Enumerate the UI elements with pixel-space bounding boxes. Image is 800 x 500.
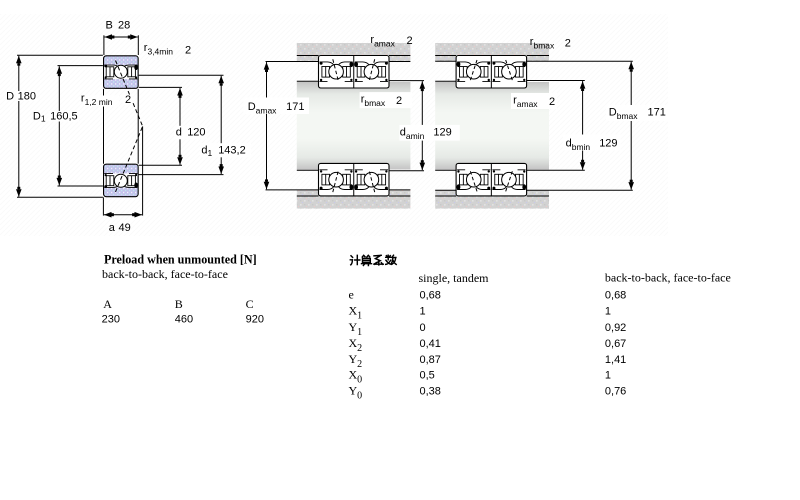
svg-text:0,38: 0,38	[420, 386, 441, 398]
svg-text:0,92: 0,92	[605, 322, 626, 334]
svg-text:single, tandem: single, tandem	[419, 271, 490, 285]
svg-text:D1: D1	[33, 111, 46, 124]
svg-text:2: 2	[185, 45, 191, 57]
svg-text:0,67: 0,67	[605, 338, 626, 350]
svg-text:180: 180	[18, 90, 36, 102]
svg-text:d: d	[176, 127, 182, 139]
svg-text:129: 129	[433, 127, 451, 139]
svg-text:0: 0	[420, 322, 426, 334]
svg-text:1: 1	[605, 370, 611, 382]
svg-text:e: e	[349, 288, 354, 302]
svg-text:120: 120	[187, 127, 205, 139]
svg-text:920: 920	[246, 314, 264, 326]
svg-text:2: 2	[565, 37, 571, 49]
svg-text:49: 49	[119, 222, 131, 234]
svg-text:back-to-back, face-to-face: back-to-back, face-to-face	[102, 267, 228, 281]
svg-text:460: 460	[175, 314, 193, 326]
svg-text:129: 129	[599, 138, 617, 150]
svg-text:0,68: 0,68	[420, 290, 441, 302]
svg-text:0,41: 0,41	[420, 338, 441, 350]
svg-text:230: 230	[102, 314, 120, 326]
svg-text:143,2: 143,2	[218, 145, 246, 157]
svg-text:B: B	[106, 20, 113, 32]
svg-text:C: C	[246, 297, 254, 311]
svg-text:2: 2	[549, 96, 555, 108]
svg-text:X1: X1	[349, 304, 363, 322]
svg-text:2: 2	[407, 35, 413, 47]
svg-text:160,5: 160,5	[50, 111, 78, 123]
svg-text:1: 1	[605, 306, 611, 318]
svg-text:28: 28	[118, 20, 130, 32]
svg-text:2: 2	[125, 94, 131, 106]
svg-text:171: 171	[648, 107, 666, 119]
svg-text:2: 2	[396, 95, 402, 107]
svg-text:B: B	[175, 297, 183, 311]
svg-text:D: D	[6, 90, 14, 102]
svg-text:0,5: 0,5	[420, 370, 435, 382]
svg-text:back-to-back, face-to-face: back-to-back, face-to-face	[605, 271, 731, 285]
svg-text:0,87: 0,87	[420, 354, 441, 366]
svg-text:a: a	[109, 222, 116, 234]
svg-text:0,68: 0,68	[605, 290, 626, 302]
svg-text:1,41: 1,41	[605, 354, 626, 366]
svg-text:A: A	[103, 297, 112, 311]
svg-text:171: 171	[286, 101, 304, 113]
svg-text:Y0: Y0	[349, 384, 363, 402]
svg-text:0,76: 0,76	[605, 386, 626, 398]
svg-text:1: 1	[420, 306, 426, 318]
svg-text:Preload when unmounted [N]: Preload when unmounted [N]	[104, 253, 257, 267]
